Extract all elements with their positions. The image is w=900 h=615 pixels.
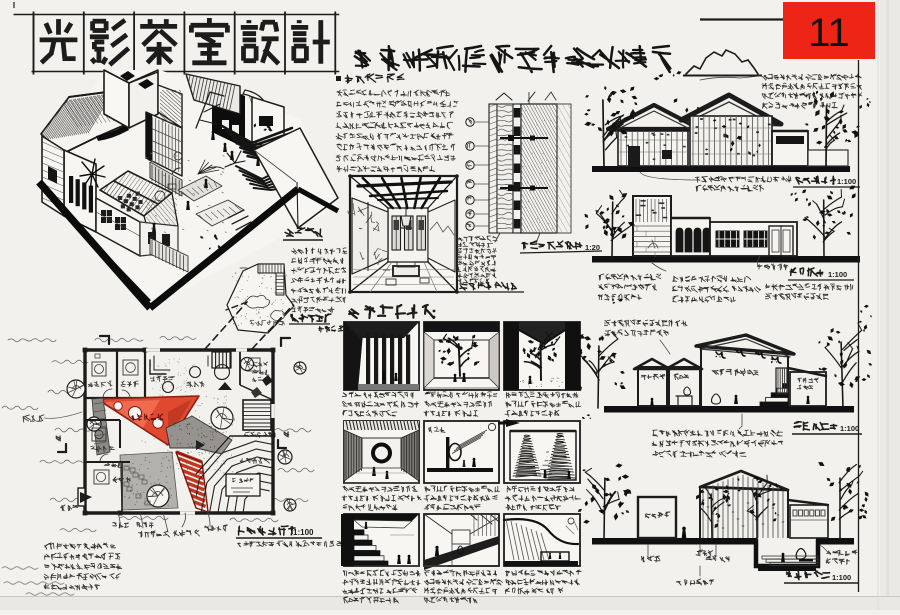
svg-text:1:100: 1:100 [293, 528, 314, 537]
svg-text:1:100: 1:100 [832, 573, 851, 582]
svg-text:1:100: 1:100 [837, 177, 856, 186]
svg-text:1:100: 1:100 [828, 270, 847, 279]
svg-text:11: 11 [808, 11, 850, 55]
svg-text:1:100: 1:100 [840, 424, 859, 433]
